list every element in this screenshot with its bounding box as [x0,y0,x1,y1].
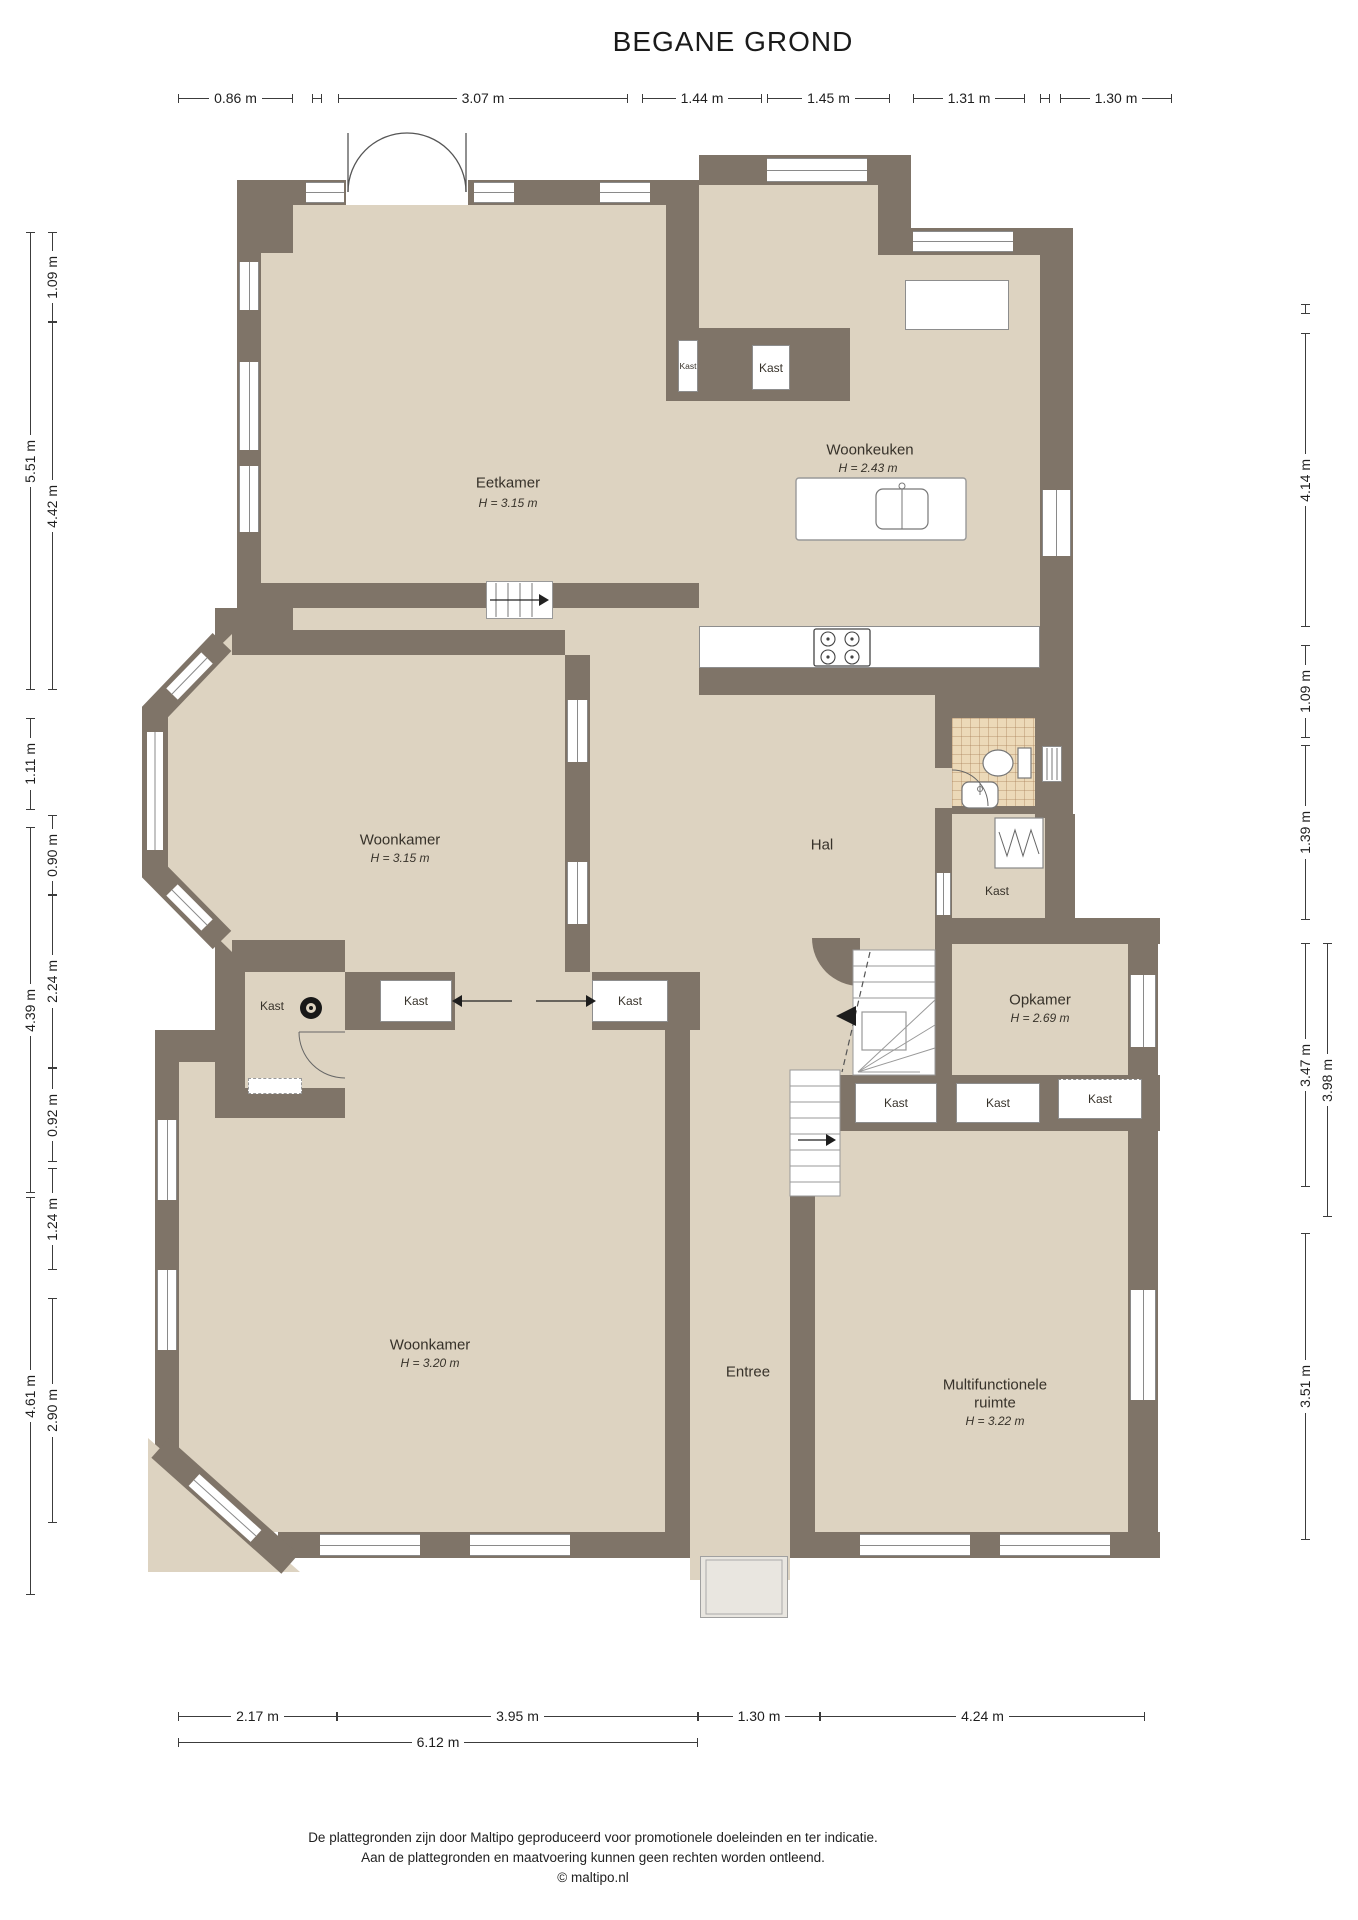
room-label-eetkamer: Eetkamer [476,475,540,492]
wall [553,583,699,608]
floor-eetkamer [261,205,666,583]
dim-top-0: 0.86 m [178,92,293,104]
closet-label: Kast [986,1096,1010,1110]
closet-label: Kast [618,994,642,1008]
dim-bottom-2: 1.30 m [698,1710,820,1722]
window [474,182,514,203]
window [239,466,259,532]
dim-left-outer-2: 4.39 m [24,827,36,1193]
dim-left-inner-4: 0.92 m [46,1068,58,1162]
dim-tick [312,92,322,104]
window [306,182,344,203]
room-label-woonkamer-onder: Woonkamer [390,1337,471,1354]
door-opening [455,972,592,1030]
dim-tick [1040,92,1050,104]
floor-toilet-tiles [952,718,1035,810]
glass-door [567,862,588,924]
radiator [1042,746,1062,782]
footer-line-2: Aan de plattegronden en maatvoering kunn… [361,1850,825,1865]
dim-left-inner-5: 1.24 m [46,1168,58,1270]
kitchen-counter [905,280,1009,330]
wall [665,1030,690,1558]
closet-label: Kast [985,884,1009,898]
wall [237,583,486,608]
dim-right-inner-1: 1.09 m [1299,645,1311,738]
room-height-woonkeuken: H = 2.43 m [838,461,897,475]
closet-label: Kast [759,361,783,375]
entree-porch [700,1556,788,1618]
dim-left-inner-1: 4.42 m [46,322,58,690]
room-label-hal: Hal [811,837,834,854]
closet-label: Kast [884,1096,908,1110]
wall [1040,228,1073,695]
window [767,158,867,182]
dim-right-outer-0: 3.98 m [1321,943,1333,1217]
room-height-woonkamer-boven: H = 3.15 m [370,851,429,865]
dim-top-3: 1.45 m [767,92,890,104]
floor-connection [666,401,699,583]
wall [790,1196,815,1558]
dim-left-inner-3: 2.24 m [46,895,58,1068]
wall [935,695,1073,718]
dim-left-outer-3: 4.61 m [24,1197,36,1595]
dim-left-inner-0: 1.09 m [46,232,58,322]
dim-top-5: 1.30 m [1060,92,1172,104]
door-opening [346,180,468,205]
window [1000,1534,1110,1556]
dim-right-inner-2: 1.39 m [1299,745,1311,920]
wall [237,180,293,253]
dim-top-4: 1.31 m [913,92,1025,104]
closet-label: Kast [404,994,428,1008]
dim-left-inner-2: 0.90 m [46,815,58,895]
room-height-eetkamer: H = 3.15 m [478,496,537,510]
stair-rail [858,950,928,960]
dim-left-outer-1: 1.11 m [24,718,36,810]
closet-label: Kast [1088,1092,1112,1106]
window [157,1120,177,1200]
window [470,1534,570,1556]
floor-garderobe [952,814,1045,918]
room-label-woonkamer-boven: Woonkamer [360,832,441,849]
floorplan-page: BEGANE GROND [0,0,1358,1920]
closet-shelf [248,1078,302,1094]
footer-line-1: De plattegronden zijn door Maltipo gepro… [308,1830,878,1845]
room-label-woonkeuken: Woonkeuken [826,442,913,459]
floor-woonkeuken-left [699,185,878,668]
window [239,362,259,450]
dim-left-outer-0: 5.51 m [24,232,36,690]
floor-opkamer [952,944,1128,1075]
window [600,182,650,203]
wall [215,940,345,972]
closet-label: Kast [679,361,696,371]
steps-eetkamer [486,581,553,619]
window [320,1534,420,1556]
dim-tick [1299,304,1311,314]
footer-line-3: © maltipo.nl [557,1870,628,1885]
window [157,1270,177,1350]
dim-left-inner-6: 2.90 m [46,1298,58,1523]
dim-top-2: 1.44 m [642,92,762,104]
window [913,231,1013,252]
dim-right-inner-4: 3.51 m [1299,1233,1311,1540]
window [1130,1290,1156,1400]
window [936,873,951,915]
dim-right-inner-0: 4.14 m [1299,333,1311,627]
floor-multifunctionele-ruimte [815,1131,1132,1532]
room-label-entree: Entree [726,1364,770,1381]
page-title: BEGANE GROND [613,26,854,58]
room-label-multifunctionele: Multifunctionele [943,1377,1047,1394]
door-opening [935,768,952,808]
dim-bottom-0: 2.17 m [178,1710,337,1722]
wall [952,806,1035,814]
wall [935,918,1160,944]
wall [699,668,1073,695]
dim-bottom-3: 4.24 m [820,1710,1145,1722]
closet-label: Kast [260,999,284,1013]
dim-bottom-total: 6.12 m [178,1736,698,1748]
room-height-opkamer: H = 2.69 m [1010,1011,1069,1025]
wall [215,630,565,655]
wall [155,1060,179,1450]
window [1042,490,1071,556]
window [860,1534,970,1556]
dim-right-inner-3: 3.47 m [1299,943,1311,1187]
wall [1045,814,1075,918]
floor-woonkamer-boven [215,655,590,972]
glass-door [567,700,588,762]
window [239,262,259,310]
room-height-woonkamer-onder: H = 3.20 m [400,1356,459,1370]
kitchen-counter-stove [699,626,1040,668]
dim-top-1: 3.07 m [338,92,628,104]
wall [155,1030,219,1062]
dim-bottom-1: 3.95 m [337,1710,698,1722]
room-height-multifunctionele: H = 3.22 m [965,1414,1024,1428]
room-label-multifunctionele-2: ruimte [974,1395,1016,1412]
room-label-opkamer: Opkamer [1009,992,1071,1009]
window [1130,975,1156,1047]
floor-entree [690,1060,790,1580]
